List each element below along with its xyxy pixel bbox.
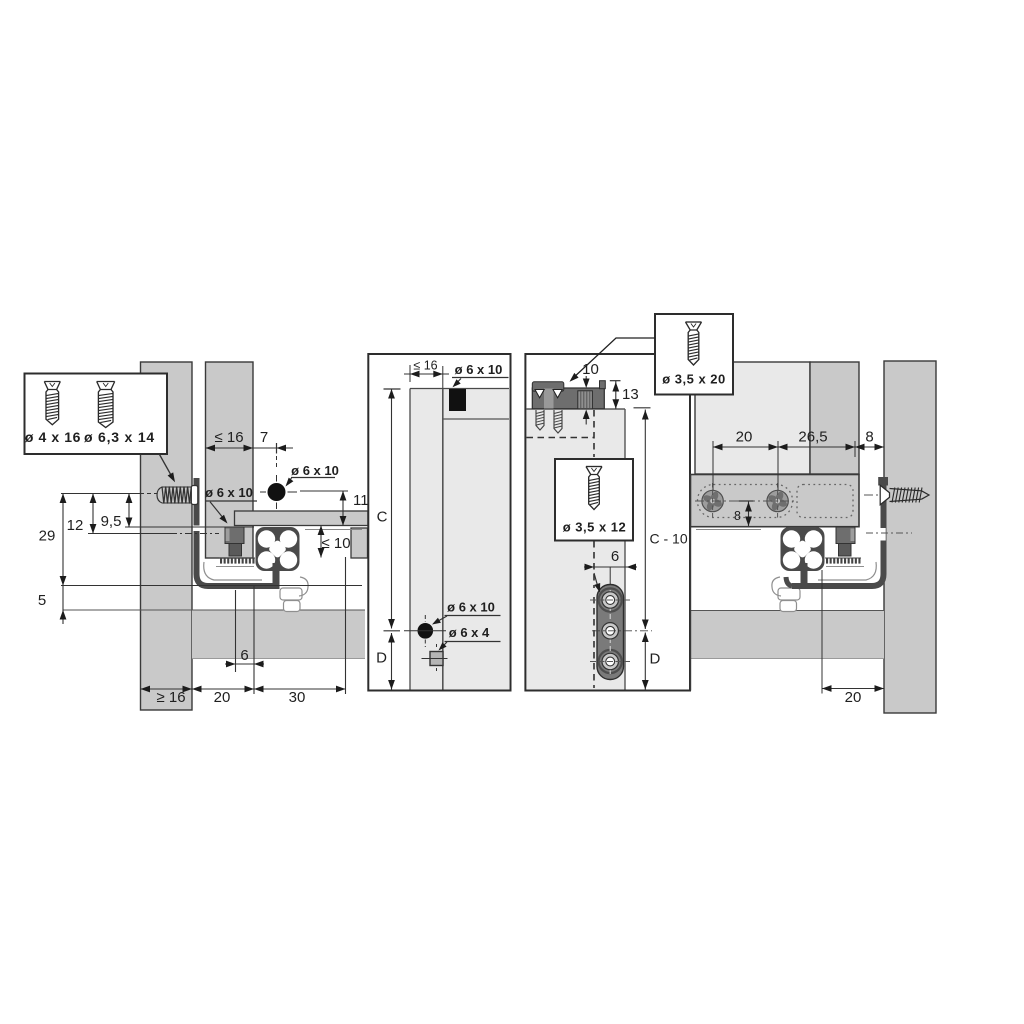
svg-text:20: 20	[214, 689, 231, 706]
svg-text:8: 8	[734, 509, 741, 523]
svg-text:20: 20	[845, 689, 862, 706]
svg-text:ø 4 x 16: ø 4 x 16	[25, 429, 81, 445]
svg-text:7: 7	[260, 429, 268, 446]
svg-text:ø 6 x 10: ø 6 x 10	[291, 463, 339, 478]
svg-text:8: 8	[865, 429, 873, 446]
svg-text:ø 6 x 10: ø 6 x 10	[447, 600, 495, 615]
svg-text:29: 29	[39, 528, 56, 545]
svg-text:13: 13	[622, 386, 639, 403]
svg-text:6: 6	[240, 647, 248, 664]
svg-text:C: C	[377, 509, 388, 526]
svg-text:≤ 10: ≤ 10	[321, 535, 350, 552]
svg-text:5: 5	[38, 592, 46, 609]
svg-text:ø 6,3 x 14: ø 6,3 x 14	[84, 429, 155, 445]
svg-text:ø 6 x 4: ø 6 x 4	[449, 625, 490, 640]
svg-text:11: 11	[353, 492, 369, 509]
svg-text:12: 12	[67, 517, 84, 534]
svg-text:26,5: 26,5	[798, 429, 827, 446]
svg-text:6: 6	[611, 548, 619, 565]
svg-text:ø 6 x 10: ø 6 x 10	[205, 485, 253, 500]
svg-text:C - 10: C - 10	[650, 531, 688, 547]
svg-text:D: D	[650, 651, 661, 668]
svg-text:20: 20	[736, 429, 753, 446]
svg-text:10: 10	[582, 361, 599, 378]
svg-text:≤ 16: ≤ 16	[214, 429, 243, 446]
svg-text:9,5: 9,5	[101, 513, 122, 530]
svg-text:D: D	[376, 650, 387, 667]
svg-text:ø 3,5 x 20: ø 3,5 x 20	[662, 372, 726, 387]
svg-text:ø 6 x 10: ø 6 x 10	[455, 362, 503, 377]
svg-text:≤ 16: ≤ 16	[413, 359, 437, 373]
svg-text:30: 30	[289, 689, 306, 706]
svg-text:ø 3,5 x 12: ø 3,5 x 12	[563, 520, 627, 535]
svg-text:≥ 16: ≥ 16	[156, 689, 185, 706]
